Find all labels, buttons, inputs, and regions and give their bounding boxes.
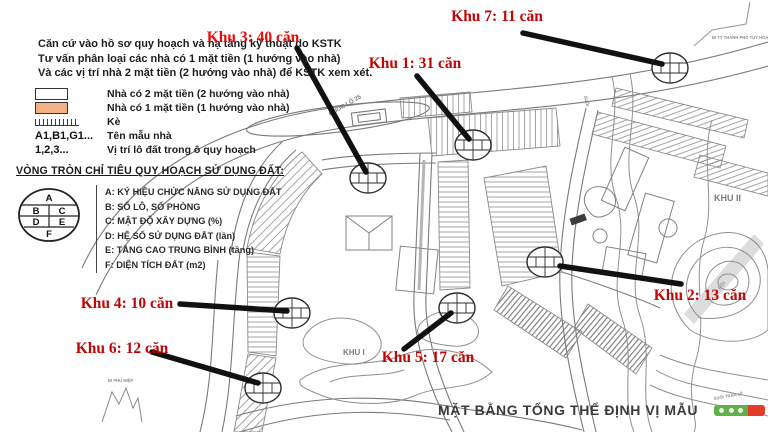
leader-khu7 — [523, 33, 662, 64]
circle-legend-item-A: A: KÝ HIỆU CHỨC NĂNG SỬ DỤNG ĐẤT — [105, 185, 282, 200]
annotation-khu3: Khu 3: 40 căn — [207, 29, 300, 47]
sheet-title: MẶT BẰNG TỔNG THỂ ĐỊNH VỊ MẪU — [438, 402, 698, 418]
suoi-label: SUỐI — [583, 95, 591, 107]
legend-key-lot: 1,2,3... — [35, 144, 103, 156]
cell-D: D — [33, 217, 40, 228]
circle-legend-item-B: B: SỐ LÔ, SỐ PHÒNG — [105, 200, 282, 215]
indicator-circle-khu1 — [455, 130, 491, 160]
di-tt-label: ĐI TT THÀNH PHỐ TUY HÒA — [712, 35, 768, 40]
annotation-khu6: Khu 6: 12 căn — [76, 340, 169, 358]
housing-blocks — [234, 88, 768, 432]
logo-dot-icon — [729, 408, 734, 413]
circle-legend-diagram: A B C D E F — [16, 185, 86, 247]
annotation-khu2: Khu 2: 13 căn — [654, 287, 747, 305]
leader-khu2 — [560, 266, 681, 284]
indicator-circle-khu3 — [350, 163, 386, 193]
annotation-khu5: Khu 5: 17 căn — [382, 349, 475, 367]
suoi-tran-label: SUỐI TRẦN LỀ — [713, 391, 743, 401]
circle-legend-title: VÒNG TRÒN CHỈ TIÊU QUY HOẠCH SỬ DỤNG ĐẤT… — [16, 165, 306, 177]
legend-label-one-front: Nhà có 1 mặt tiền (1 hướng vào nhà) — [107, 102, 290, 114]
annotation-khu4: Khu 4: 10 căn — [81, 295, 174, 313]
cell-B: B — [33, 206, 40, 217]
legend-key-model: A1,B1,G1... — [35, 130, 103, 142]
indicator-circle-khu7 — [652, 53, 688, 83]
circle-legend-item-C: C: MẬT ĐỘ XÂY DỰNG (%) — [105, 214, 282, 229]
annotation-khu7: Khu 7: 11 căn — [451, 8, 543, 26]
indicator-circle-khu6 — [245, 373, 281, 403]
logo-dot-icon — [719, 408, 724, 413]
circle-legend-item-F: F: DIỆN TÍCH ĐẤT (m2) — [105, 258, 282, 273]
cell-A: A — [46, 193, 53, 204]
di-phu-label: ĐI PHÚ HIỆP — [108, 378, 133, 383]
legend: Nhà có 2 mặt tiền (2 hướng vào nhà) Nhà … — [35, 87, 290, 157]
legend-label-lot: Vị trí lô đất trong ô quy hoạch — [107, 144, 290, 156]
logo-green-segment — [714, 405, 748, 416]
annotation-khu1: Khu 1: 31 căn — [369, 55, 462, 73]
circle-legend-items: A: KÝ HIỆU CHỨC NĂNG SỬ DỤNG ĐẤT B: SỐ L… — [96, 185, 282, 273]
brand-logo — [714, 405, 765, 416]
legend-label-two-front: Nhà có 2 mặt tiền (2 hướng vào nhà) — [107, 88, 290, 100]
cell-E: E — [59, 217, 65, 228]
footer: MẶT BẰNG TỔNG THỂ ĐỊNH VỊ MẪU 01 — [438, 402, 768, 418]
indicator-circle-khu2 — [527, 247, 563, 277]
cell-F: F — [46, 229, 52, 240]
leader-khu5 — [404, 313, 451, 349]
legend-label-model: Tên mẫu nhà — [107, 130, 290, 142]
khu1-area-label: KHU I — [343, 348, 365, 357]
legend-swatch-two-front — [35, 88, 68, 100]
embankment-symbol — [35, 119, 79, 126]
circle-legend: VÒNG TRÒN CHỈ TIÊU QUY HOẠCH SỬ DỤNG ĐẤT… — [16, 165, 306, 273]
khu2-area-label: KHU II — [714, 193, 741, 203]
legend-label-ke: Kè — [107, 116, 290, 128]
legend-swatch-one-front — [35, 102, 68, 114]
cell-C: C — [59, 206, 66, 217]
logo-red-segment — [748, 405, 765, 416]
site-plan-page: KHU I KHU II QUỐC LỘ 25 ĐI TT THÀNH PHỐ … — [0, 0, 768, 432]
logo-dot-icon — [738, 408, 743, 413]
circle-legend-item-E: E: TẦNG CAO TRUNG BÌNH (tầng) — [105, 243, 282, 258]
circle-legend-item-D: D: HỆ SỐ SỬ DỤNG ĐẤT (lần) — [105, 229, 282, 244]
